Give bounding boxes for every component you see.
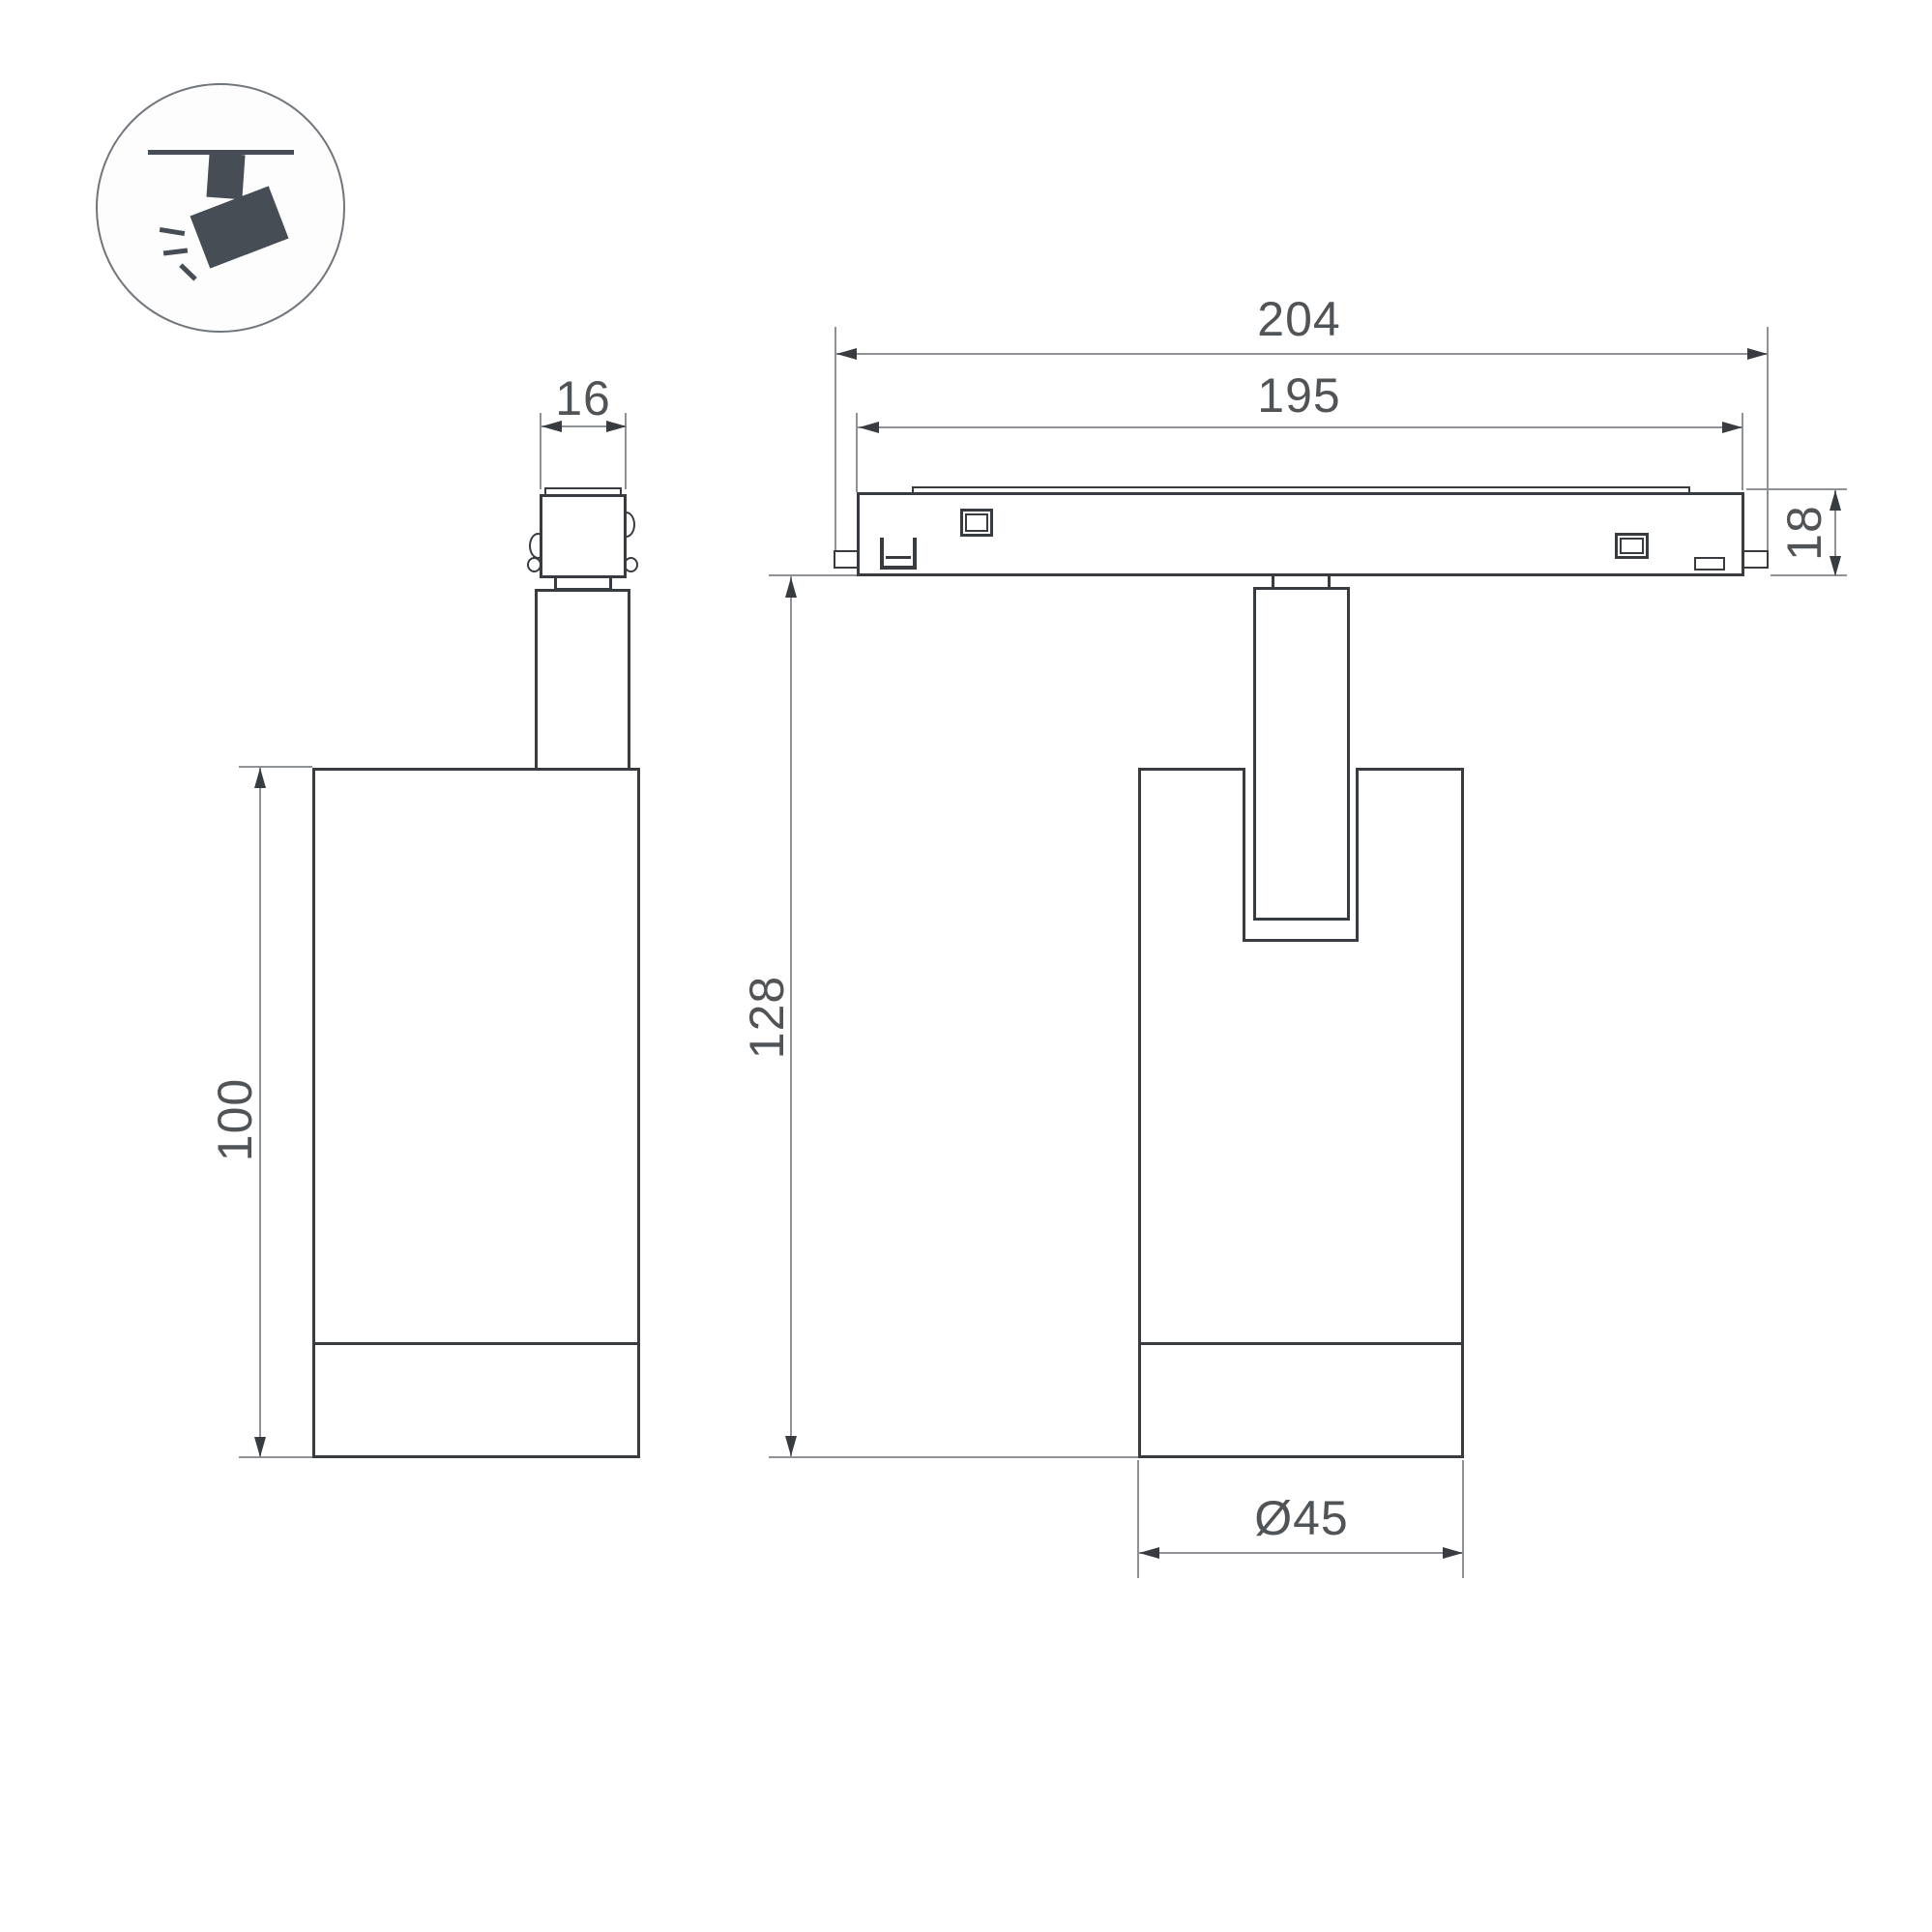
- track-connector-inner-frame: [965, 513, 988, 532]
- extension-line: [769, 1456, 1138, 1458]
- extension-line: [834, 327, 836, 550]
- extension-line: [856, 413, 858, 492]
- extension-line: [239, 1456, 312, 1458]
- front-stem: [1253, 587, 1350, 921]
- dimension-line: [857, 426, 1743, 428]
- extension-line: [769, 574, 857, 576]
- dimension-line: [835, 353, 1768, 355]
- extension-line: [239, 766, 312, 768]
- dimension-text: 195: [1244, 371, 1355, 420]
- dimension-text: 100: [211, 1062, 259, 1178]
- track-connector-inner-frame: [1620, 538, 1644, 554]
- arrowhead: [1747, 348, 1768, 360]
- side-body: [312, 768, 640, 1458]
- track-clip: [880, 538, 917, 570]
- arrowhead: [1722, 422, 1742, 433]
- drawing-sheet: 16 100: [0, 0, 1932, 1932]
- track-clip-bar: [886, 556, 911, 559]
- arrowhead: [254, 1437, 266, 1457]
- extension-line: [1767, 327, 1769, 550]
- arrowhead: [785, 1436, 797, 1456]
- track-slot: [1694, 557, 1725, 571]
- dimension-text: 18: [1780, 475, 1829, 591]
- dimension-text: 16: [529, 374, 637, 423]
- side-stem: [535, 589, 630, 771]
- dimension-text: 204: [1244, 295, 1355, 343]
- extension-line: [1462, 1460, 1464, 1578]
- arrowhead: [1443, 1547, 1463, 1559]
- arrowhead: [254, 768, 266, 788]
- arrowhead: [1139, 1547, 1159, 1559]
- track-connector-right: [1615, 533, 1649, 559]
- side-track-adapter: [540, 494, 627, 578]
- arrowhead: [836, 348, 857, 360]
- dimension-text: Ø45: [1229, 1494, 1374, 1542]
- arrowhead: [785, 577, 797, 598]
- extension-line: [1137, 1460, 1139, 1578]
- front-bezel-line: [1141, 1342, 1461, 1345]
- dimension-text: 128: [743, 959, 791, 1075]
- dimension-line: [1138, 1552, 1464, 1554]
- track-end-tab-right: [1741, 550, 1769, 569]
- side-bezel-line: [315, 1342, 637, 1345]
- track-connector-left: [960, 509, 993, 537]
- icon-stem: [206, 153, 245, 199]
- arrowhead: [859, 422, 879, 433]
